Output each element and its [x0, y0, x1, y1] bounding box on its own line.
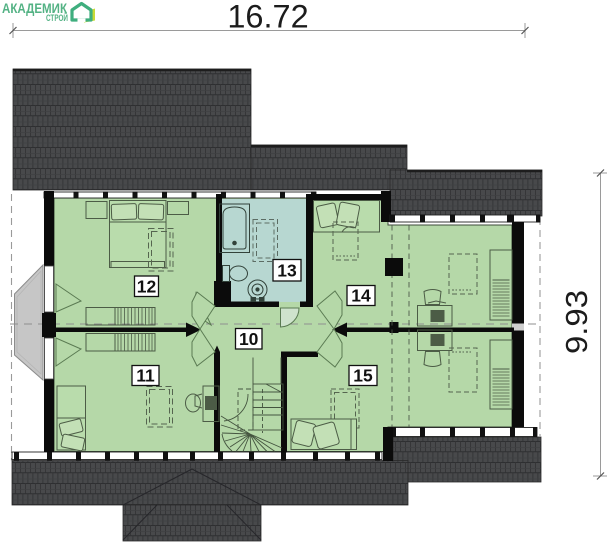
svg-text:16.72: 16.72 [227, 0, 308, 35]
svg-text:12: 12 [137, 277, 157, 297]
svg-text:15: 15 [353, 366, 373, 386]
svg-text:13: 13 [277, 261, 297, 281]
svg-text:10: 10 [239, 329, 259, 349]
svg-text:9.93: 9.93 [559, 290, 594, 354]
svg-text:11: 11 [136, 366, 155, 386]
svg-text:14: 14 [351, 286, 371, 306]
svg-text:СТРОЙ: СТРОЙ [46, 12, 68, 23]
